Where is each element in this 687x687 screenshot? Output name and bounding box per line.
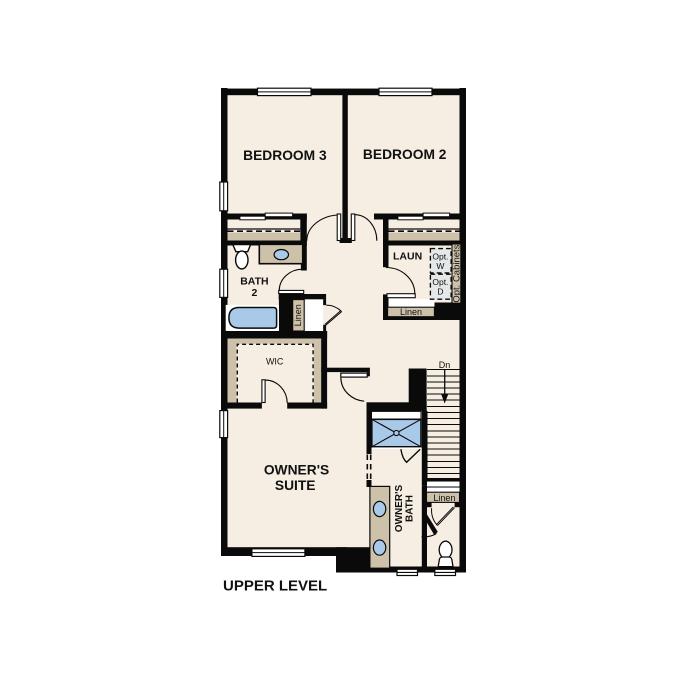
- svg-text:2: 2: [251, 287, 257, 299]
- svg-text:OWNER'S: OWNER'S: [264, 463, 329, 478]
- svg-text:Opt.: Opt.: [432, 277, 448, 287]
- svg-text:Linen: Linen: [400, 307, 422, 317]
- svg-text:BEDROOM 2: BEDROOM 2: [363, 147, 447, 162]
- svg-text:UPPER LEVEL: UPPER LEVEL: [223, 578, 327, 595]
- svg-text:LAUN: LAUN: [393, 250, 422, 262]
- svg-text:Dn: Dn: [439, 360, 451, 370]
- svg-text:WIC: WIC: [266, 357, 284, 367]
- svg-text:D: D: [437, 287, 443, 297]
- svg-text:SUITE: SUITE: [275, 478, 316, 493]
- svg-text:BEDROOM 3: BEDROOM 3: [243, 148, 327, 163]
- svg-text:Opt.: Opt.: [432, 252, 448, 262]
- svg-text:Linen: Linen: [293, 304, 303, 326]
- svg-text:BATH: BATH: [240, 276, 268, 288]
- svg-text:W: W: [436, 261, 444, 271]
- svg-text:Opt. Cabinets: Opt. Cabinets: [452, 244, 463, 302]
- svg-text:BATH: BATH: [405, 495, 416, 522]
- svg-text:Linen: Linen: [433, 493, 455, 503]
